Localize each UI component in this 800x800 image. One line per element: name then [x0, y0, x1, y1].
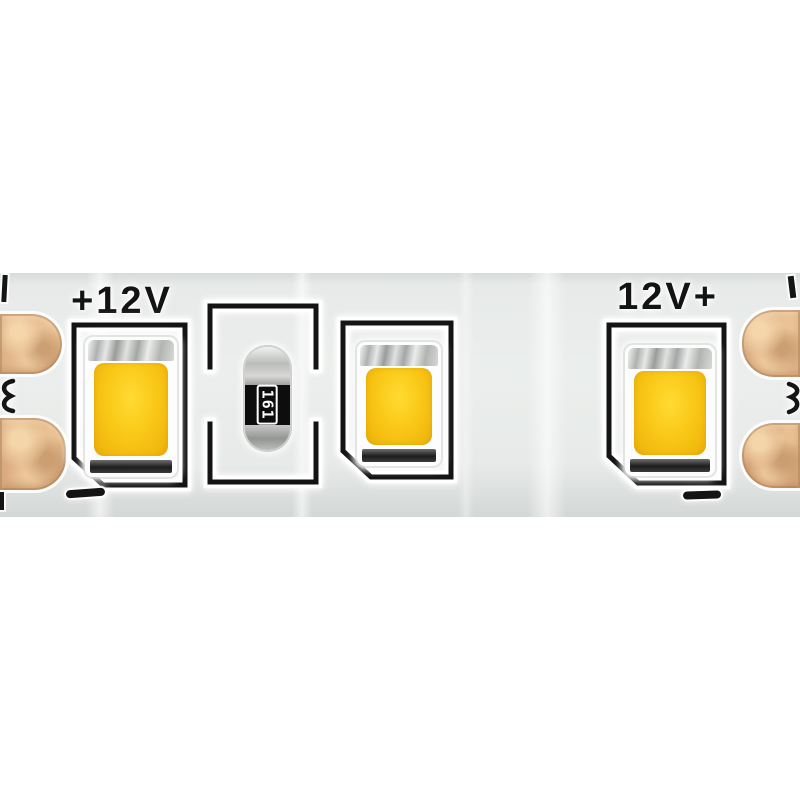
silkscreen-tick-bottom-left	[0, 492, 4, 510]
led-lens-reflection	[360, 345, 438, 366]
resistor-code: 161	[259, 390, 276, 420]
led-package-2	[357, 342, 441, 466]
led-package-base	[362, 449, 436, 462]
silkscreen-tick-top-left	[1, 275, 7, 302]
led-strip: +12V 12V+ 161	[0, 273, 800, 517]
resistor-band: 161	[245, 385, 290, 425]
led-package-base	[90, 460, 172, 473]
solder-pad-right-bottom	[742, 423, 800, 488]
negative-polarity-mark-right	[683, 490, 721, 499]
pcb-streak	[528, 273, 566, 517]
solder-pad-left-top	[0, 314, 62, 374]
chip-resistor: 161	[245, 347, 290, 450]
led-package-1	[85, 337, 177, 477]
voltage-label-left: +12V	[56, 282, 188, 320]
led-phosphor-window	[94, 363, 168, 456]
silkscreen-tick-top-right	[788, 276, 797, 299]
solder-pad-right-top	[742, 310, 800, 377]
led-phosphor-window	[634, 371, 706, 455]
solder-pad-left-bottom	[0, 418, 66, 490]
voltage-label-right: 12V+	[608, 278, 728, 316]
resistor-code-frame: 161	[257, 385, 278, 425]
photo-canvas: +12V 12V+ 161	[0, 0, 800, 800]
led-lens-reflection	[628, 348, 712, 369]
led-phosphor-window	[366, 368, 432, 445]
cut-mark-left-icon	[0, 378, 14, 414]
led-package-3	[625, 345, 715, 476]
cut-mark-right-icon	[791, 381, 800, 415]
led-lens-reflection	[88, 340, 174, 361]
led-package-base	[630, 459, 710, 472]
pcb-streak	[458, 273, 474, 517]
